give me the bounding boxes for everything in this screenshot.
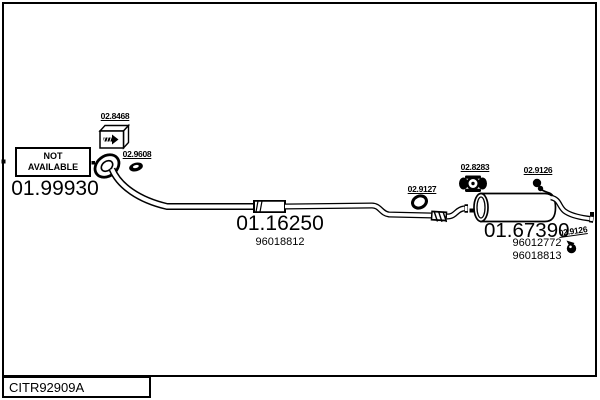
not-available-line1: NOT	[44, 151, 63, 162]
ref-fitting-kit[interactable]: 02.8468	[97, 111, 133, 121]
diagram-code-box: CITR92909A	[2, 376, 151, 398]
not-available-box: NOT AVAILABLE	[15, 147, 91, 177]
not-available-line2: AVAILABLE	[28, 162, 78, 173]
ref-centre-pipe: 01.16250	[225, 212, 335, 236]
mounting-ring-icon	[411, 194, 429, 211]
tailpipe	[551, 198, 594, 220]
ref-gasket[interactable]: 02.9608	[119, 149, 155, 159]
coupling-sleeve	[431, 211, 447, 222]
connector-square-silencer-inlet	[470, 209, 474, 213]
exhaust-diagram-page: NOT AVAILABLE 01.99930 02.8468 02.9608 0…	[0, 0, 600, 400]
gasket-icon	[128, 161, 144, 173]
diagram-code: CITR92909A	[9, 380, 84, 395]
connector-square-border	[2, 160, 6, 164]
ref-clamp[interactable]: 02.8283	[457, 162, 493, 172]
ref-front-pipe: 01.99930	[5, 177, 105, 201]
ref-hanger-top[interactable]: 02.9126	[520, 165, 556, 175]
oem2-rear-silencer: 96018813	[506, 250, 568, 262]
connector-square-flange	[92, 161, 96, 165]
fitting-kit-box-icon	[100, 126, 129, 149]
rear-silencer-body	[474, 194, 556, 222]
silencer-inlet-stub	[447, 209, 468, 217]
front-downpipe	[112, 169, 255, 207]
clamp-icon	[459, 176, 487, 193]
oem1-rear-silencer: 96012772	[506, 237, 568, 249]
centre-resonator	[253, 201, 286, 212]
oem-centre-pipe: 96018812	[248, 236, 312, 248]
ref-mounting-ring[interactable]: 02.9127	[402, 184, 442, 194]
